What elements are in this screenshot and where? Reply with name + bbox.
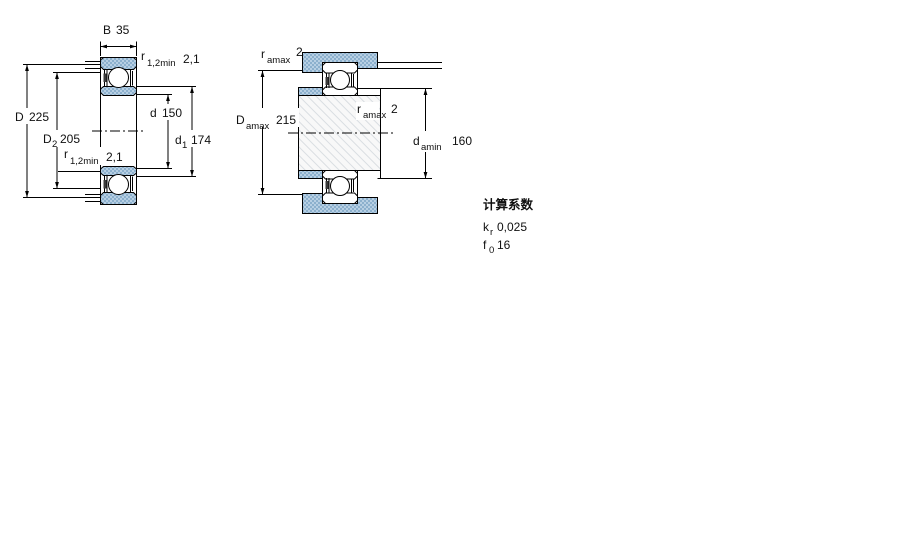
calculation-factors: 计算系数 kr0,025 f016 bbox=[483, 197, 534, 256]
chamfer-bottom-label: r1,2min2,1 bbox=[62, 147, 124, 167]
dim-symbol: d bbox=[150, 106, 157, 120]
dim-value: 174 bbox=[191, 133, 211, 147]
dim-value: 215 bbox=[276, 113, 296, 127]
svg-text:d150: d150 bbox=[150, 106, 182, 120]
dim-value: 2 bbox=[391, 102, 398, 116]
factor-symbol: k bbox=[483, 220, 490, 234]
bearing-drawing-page: B35 r1,2min2,1 D225 D2205 r1,2min2,1 d15… bbox=[0, 0, 900, 560]
dim-symbol: d bbox=[175, 133, 182, 147]
dim-symbol: r bbox=[64, 147, 68, 161]
dim-value: 2,1 bbox=[183, 52, 200, 66]
bore-diameter-label: d150 bbox=[146, 104, 183, 120]
dim-value: 2 bbox=[296, 45, 303, 59]
dim-subscript: amax bbox=[363, 110, 386, 121]
dim-value: 150 bbox=[162, 106, 182, 120]
dim-value: 35 bbox=[116, 23, 130, 37]
dim-value: 160 bbox=[452, 134, 472, 148]
dim-subscript: amax bbox=[246, 121, 269, 132]
dim-symbol: D bbox=[236, 113, 245, 127]
dim-symbol: r bbox=[357, 102, 361, 116]
factor-value: 0,025 bbox=[497, 220, 527, 234]
dim-symbol: r bbox=[261, 47, 265, 61]
technical-drawing: B35 r1,2min2,1 D225 D2205 r1,2min2,1 d15… bbox=[0, 0, 900, 560]
dim-symbol: D bbox=[15, 110, 24, 124]
left-section-view: B35 r1,2min2,1 D225 D2205 r1,2min2,1 d15… bbox=[12, 23, 215, 205]
ball-top bbox=[109, 68, 129, 88]
svg-text:B35: B35 bbox=[103, 23, 130, 37]
housing-diameter-label: Damax215 bbox=[231, 108, 299, 132]
factor-subscript: r bbox=[490, 227, 493, 238]
ball-bottom bbox=[109, 175, 129, 195]
dim-subscript: amax bbox=[267, 55, 290, 66]
dim-value: 205 bbox=[60, 132, 80, 146]
ball-bottom bbox=[331, 177, 350, 196]
factor-row-f0: f016 bbox=[483, 238, 511, 256]
dim-symbol: d bbox=[413, 134, 420, 148]
dim-subscript: 2 bbox=[52, 139, 57, 150]
dim-subscript: 1,2min bbox=[147, 58, 176, 69]
factors-heading: 计算系数 bbox=[483, 197, 534, 212]
dim-value: 225 bbox=[29, 110, 49, 124]
dim-value: 2,1 bbox=[106, 150, 123, 164]
outer-diameter-label: D225 bbox=[12, 108, 50, 124]
ball-top bbox=[331, 71, 350, 90]
svg-text:r1,2min2,1: r1,2min2,1 bbox=[141, 49, 200, 69]
shaft-shoulder-bottom bbox=[299, 171, 323, 179]
factor-subscript: 0 bbox=[489, 245, 494, 256]
chamfer-top-label: r1,2min2,1 bbox=[141, 49, 200, 69]
fillet-mid-label: ramax2 bbox=[356, 102, 398, 121]
dim-symbol: r bbox=[141, 49, 145, 63]
dim-subscript: 1 bbox=[182, 140, 187, 151]
factor-row-kr: kr0,025 bbox=[483, 220, 527, 238]
factor-symbol: f bbox=[483, 238, 487, 252]
right-mounting-view: ramax2 Damax215 ramax2 damin160 bbox=[231, 45, 472, 214]
dim-symbol: B bbox=[103, 23, 111, 37]
factor-value: 16 bbox=[497, 238, 511, 252]
dim-symbol: D bbox=[43, 132, 52, 146]
dim-subscript: amin bbox=[421, 142, 442, 153]
shoulder-diameter-label: d1174 bbox=[171, 130, 215, 151]
dim-subscript: 1,2min bbox=[70, 156, 99, 167]
width-dim-label: B35 bbox=[103, 23, 130, 37]
shaft-diameter-label: damin160 bbox=[409, 131, 472, 153]
shaft-shoulder-top bbox=[299, 88, 323, 96]
svg-text:d1174: d1174 bbox=[175, 133, 211, 151]
fillet-top-label: ramax2 bbox=[261, 45, 303, 66]
svg-text:D225: D225 bbox=[15, 110, 49, 124]
svg-text:ramax2: ramax2 bbox=[261, 45, 303, 66]
